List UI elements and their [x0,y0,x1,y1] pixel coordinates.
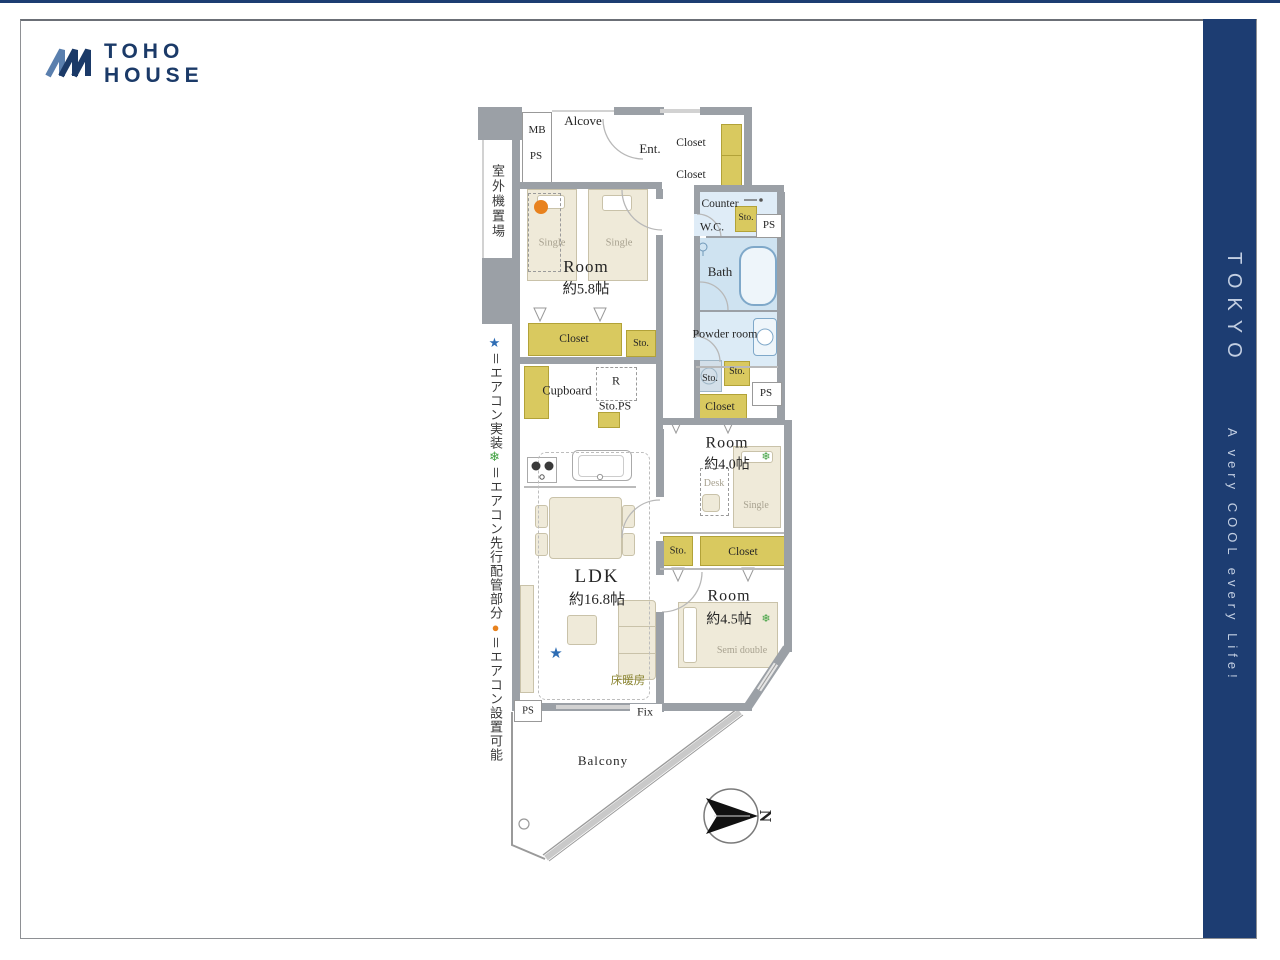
diagonal-wall [747,648,787,708]
wall-segment [520,357,662,364]
bed-label: Single [606,237,633,248]
wall-segment [660,568,784,570]
wall-segment [482,140,484,260]
closet-label: Closet [676,169,705,181]
room2-name: Room [705,436,748,453]
wc-label: W.C. [700,221,724,234]
wall-segment [656,189,663,199]
room3-size: 約4.5帖 [706,614,752,629]
ps-label: PS [530,151,542,163]
aircon-piping-icon: ❄ [761,614,770,626]
powder-room-label: Powder room [692,328,758,341]
aircon-installed-star-icon: ★ [549,647,562,663]
sto-ps-label: Sto.PS [599,400,631,413]
room2-size: 約4.0帖 [704,459,750,474]
balcony-label: Balcony [578,754,628,768]
closet-label: Closet [559,333,588,345]
room1-size: 約5.8帖 [562,282,609,297]
counter-mark [744,198,763,202]
desk-label: Desk [704,479,725,490]
room3-name: Room [707,589,750,606]
closet-label: Closet [705,401,734,413]
wall-segment [694,236,700,336]
floor-heating-label: 床暖房 [611,675,646,687]
fix-label: Fix [637,706,653,719]
entrance-label: Ent. [639,142,660,156]
wall-segment [614,107,664,115]
cupboard-label: Cupboard [542,384,591,397]
wall-segment [744,112,752,190]
wall-segment [694,360,700,420]
shower-head [699,243,707,256]
bed-label: Single [539,237,566,248]
wall-segment [696,310,778,312]
aircon-piping-icon: ❄ [761,452,770,464]
floor-plan-page: TOKYO A very COOL every Life! TOHO HOUSE… [0,0,1280,960]
closet-label: Closet [728,546,757,558]
fridge-label: R [612,375,620,388]
storage-label: Sto. [702,374,718,385]
sink-bowl [757,329,773,345]
wall-segment [478,107,522,140]
ps-label: PS [760,388,772,400]
wall-segment [784,420,792,652]
wall-segment [552,110,614,112]
wall-segment [656,418,784,425]
wall-segment [694,192,700,214]
wall-segment [512,182,662,189]
ldk-size: 約16.8帖 [569,593,625,609]
ps-label: PS [522,705,534,716]
counter-label: Counter [701,198,738,210]
bed-label: Single [743,501,769,512]
wall-segment [512,140,520,705]
ps-label: PS [763,220,775,232]
compass-north-label: N [756,810,775,823]
mb-label: MB [528,125,545,137]
bed-label: Semi double [716,646,768,657]
fix-window [556,705,636,709]
alcove-label: Alcove [564,114,602,128]
ldk-name: LDK [574,567,619,587]
balcony-outline [512,709,743,861]
wall-segment [482,258,512,324]
storage-label: Sto. [738,214,753,224]
closet-label: Closet [676,137,705,149]
window [660,109,702,113]
storage-label: Sto. [633,339,649,350]
wall-segment [694,185,784,192]
wall-segment [656,235,663,429]
storage-label: Sto. [670,545,687,556]
wall-segment [656,612,664,712]
stove-burners [532,462,554,480]
storage-label: Sto. [729,367,745,378]
wall-segment [656,429,664,497]
room1-name: Room [563,258,609,276]
wall-segment [660,532,784,534]
compass: N [704,789,775,843]
bath-label: Bath [708,265,733,279]
faucet [597,474,602,479]
